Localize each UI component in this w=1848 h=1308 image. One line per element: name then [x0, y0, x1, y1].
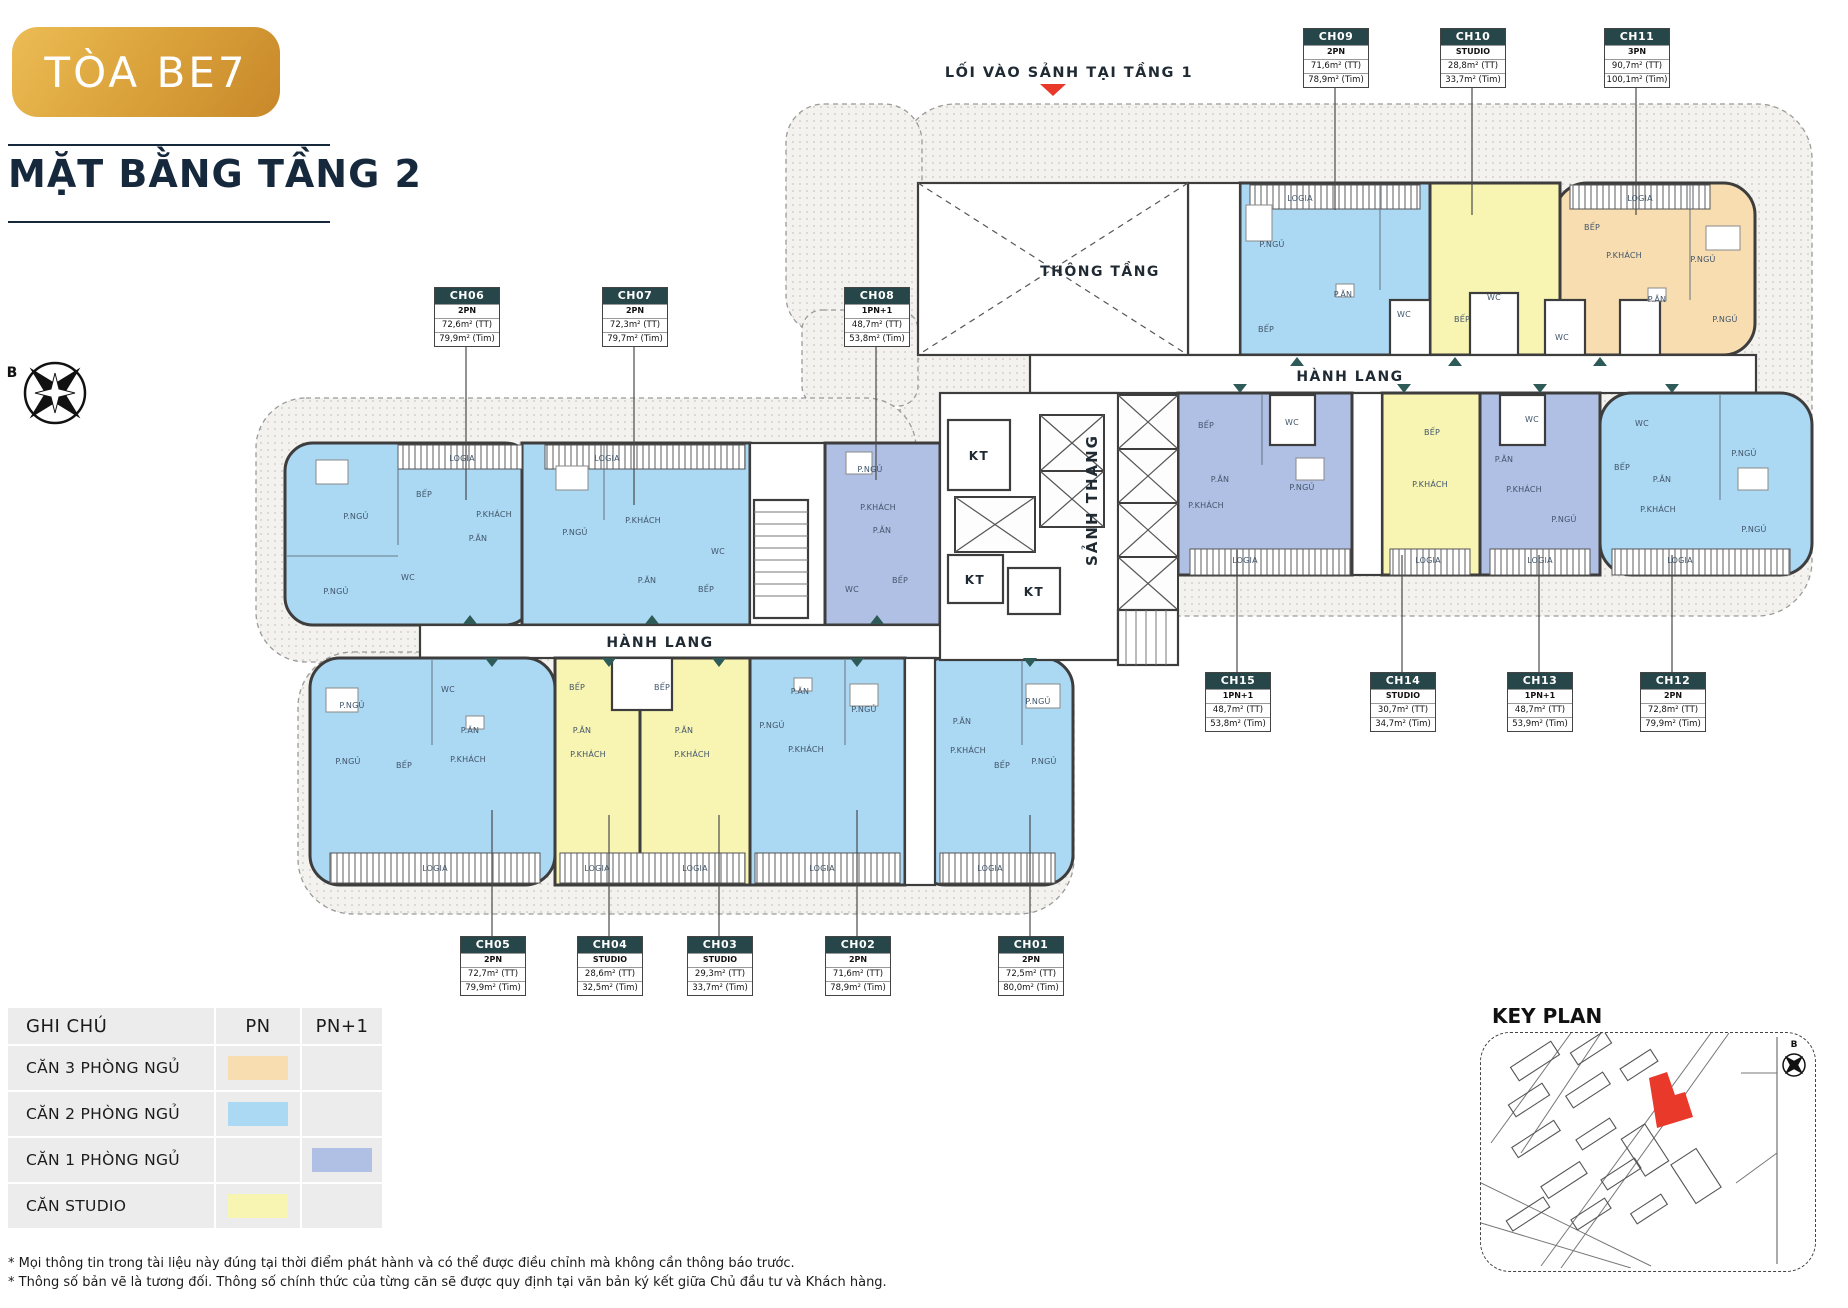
room-label-living: P.KHÁCH — [476, 508, 512, 519]
room-label-bedroom: P.NGỦ — [1289, 481, 1314, 492]
service-area — [1352, 393, 1382, 575]
room-label-logia: LOGIA — [1287, 194, 1313, 203]
room-label-kitchen: BẾP — [1614, 461, 1630, 472]
room-label-bedroom: P.NGỦ — [339, 699, 364, 710]
legend-swatch-studio — [228, 1194, 288, 1218]
room-label-living: P.KHÁCH — [625, 514, 661, 525]
room-label-wc: WC — [1487, 293, 1501, 302]
room-label-living: P.KHÁCH — [1188, 499, 1224, 510]
room-label-dining: P.ĂN — [953, 715, 971, 726]
room-label-bedroom: P.NGỦ — [1731, 447, 1756, 458]
unit-area-tim: 33,7m² (Tim) — [1441, 73, 1505, 87]
keyplan-highlight-building — [1649, 1072, 1693, 1128]
room-label-wc: WC — [1635, 419, 1649, 428]
wc-box — [1470, 293, 1518, 355]
unit-label-ch09: CH09 2PN 71,6m² (TT) 78,9m² (Tim) — [1303, 28, 1369, 88]
room-label-bedroom: P.NGỦ — [857, 463, 882, 474]
unit-area-tt: 72,3m² (TT) — [603, 318, 667, 332]
room-label-bedroom: P.NGỦ — [323, 585, 348, 596]
legend-row-1pn: CĂN 1 PHÒNG NGỦ — [8, 1138, 214, 1182]
legend-title: GHI CHÚ — [8, 1008, 214, 1044]
unit-type: 3PN — [1605, 45, 1669, 58]
keyplan-north-label: B — [1791, 1040, 1798, 1050]
left-wing — [285, 443, 1010, 658]
room-label-bedroom: P.NGỦ — [1259, 238, 1284, 249]
room-label-wc: WC — [845, 585, 859, 594]
room-label-bedroom: P.NGỦ — [1025, 695, 1050, 706]
room-label-living: P.KHÁCH — [860, 501, 896, 512]
keyplan-compass-icon: B — [1776, 1040, 1812, 1083]
room-label-kitchen: BẾP — [1584, 221, 1600, 232]
unit-label-ch15: CH15 1PN+1 48,7m² (TT) 53,8m² (Tim) — [1205, 672, 1271, 732]
room-label-logia: LOGIA — [422, 864, 448, 873]
unit-area-tt: 28,8m² (TT) — [1441, 59, 1505, 73]
unit-area-tt: 48,7m² (TT) — [845, 318, 909, 332]
unit-type: 2PN — [603, 304, 667, 317]
room-label-living: P.KHÁCH — [1412, 478, 1448, 489]
wc-box — [1620, 300, 1660, 355]
room-label-logia: LOGIA — [584, 864, 610, 873]
unit-area-tim: 100,1m² (Tim) — [1605, 73, 1669, 87]
room-label-bedroom: P.NGỦ — [1551, 513, 1576, 524]
unit-label-ch08: CH08 1PN+1 48,7m² (TT) 53,8m² (Tim) — [844, 287, 910, 347]
footnote-2: * Thông số bản vẽ là tương đối. Thông số… — [8, 1275, 887, 1290]
unit-label-ch04: CH04 STUDIO 28,6m² (TT) 32,5m² (Tim) — [577, 936, 643, 996]
room-label-living: P.KHÁCH — [788, 743, 824, 754]
room-label-kitchen: BẾP — [1454, 313, 1470, 324]
room-label-bedroom: P.NGỦ — [562, 526, 587, 537]
room-label-logia: LOGIA — [1232, 556, 1258, 565]
unit-id: CH02 — [826, 937, 890, 953]
room-label-dining: P.ĂN — [461, 724, 479, 735]
unit-area-tim: 53,8m² (Tim) — [845, 332, 909, 346]
room-label-logia: LOGIA — [449, 454, 475, 463]
room-label-dining: P.ĂN — [1495, 453, 1513, 464]
entry-arrow-icon — [1040, 84, 1066, 96]
room-label-bedroom: P.NGỦ — [343, 510, 368, 521]
room-label-wc: WC — [441, 685, 455, 694]
unit-id: CH10 — [1441, 29, 1505, 45]
kt-label: KT — [1024, 585, 1044, 599]
unit-label-ch13: CH13 1PN+1 48,7m² (TT) 53,9m² (Tim) — [1507, 672, 1573, 732]
unit-id: CH07 — [603, 288, 667, 304]
corridor-label-right: HÀNH LANG — [1296, 368, 1403, 385]
unit-area-tt: 30,7m² (TT) — [1371, 703, 1435, 717]
unit-area-ch02 — [750, 658, 905, 885]
unit-type: STUDIO — [1371, 689, 1435, 702]
room-label-living: P.KHÁCH — [950, 744, 986, 755]
unit-area-tim: 32,5m² (Tim) — [578, 981, 642, 995]
unit-area-tim: 78,9m² (Tim) — [1304, 73, 1368, 87]
unit-id: CH01 — [999, 937, 1063, 953]
room-label-wc: WC — [1555, 333, 1569, 342]
room-label-kitchen: BẾP — [892, 574, 908, 585]
room-label-logia: LOGIA — [809, 864, 835, 873]
room-label-dining: P.ĂN — [1211, 473, 1229, 484]
unit-area-tim: 80,0m² (Tim) — [999, 981, 1063, 995]
room-label-kitchen: BẾP — [994, 759, 1010, 770]
unit-area-tt: 90,7m² (TT) — [1605, 59, 1669, 73]
room-label-dining: P.ĂN — [573, 724, 591, 735]
room-label-living: P.KHÁCH — [1506, 483, 1542, 494]
unit-label-ch11: CH11 3PN 90,7m² (TT) 100,1m² (Tim) — [1604, 28, 1670, 88]
unit-type: 1PN+1 — [1206, 689, 1270, 702]
unit-type: 1PN+1 — [1508, 689, 1572, 702]
logia-strip — [545, 445, 745, 469]
core — [940, 393, 1178, 665]
unit-id: CH05 — [461, 937, 525, 953]
logia-strip — [1612, 549, 1790, 575]
unit-id: CH03 — [688, 937, 752, 953]
room-label-dining: P.ĂN — [873, 524, 891, 535]
room-label-living: P.KHÁCH — [674, 748, 710, 759]
unit-area-tim: 33,7m² (Tim) — [688, 981, 752, 995]
left-corridor — [420, 625, 1010, 658]
room-label-wc: WC — [401, 573, 415, 582]
room-label-wc: WC — [1397, 310, 1411, 319]
unit-id: CH15 — [1206, 673, 1270, 689]
unit-type: 2PN — [826, 953, 890, 966]
stairs — [754, 500, 808, 618]
unit-type: 2PN — [1641, 689, 1705, 702]
room-label-dining: P.ĂN — [469, 532, 487, 543]
unit-id: CH13 — [1508, 673, 1572, 689]
logia-strip — [1190, 549, 1350, 575]
unit-area-tim: 53,9m² (Tim) — [1508, 717, 1572, 731]
room-label-logia: LOGIA — [1627, 194, 1653, 203]
unit-area-tim: 79,9m² (Tim) — [461, 981, 525, 995]
room-label-wc: WC — [1525, 415, 1539, 424]
keyplan-title: KEY PLAN — [1492, 1004, 1602, 1028]
room-label-wc: WC — [711, 547, 725, 556]
legend-col-pn: PN — [216, 1008, 300, 1044]
room-label-logia: LOGIA — [594, 454, 620, 463]
room-label-dining: P.ĂN — [638, 574, 656, 585]
kt-label: KT — [965, 573, 985, 587]
unit-label-ch07: CH07 2PN 72,3m² (TT) 79,7m² (Tim) — [602, 287, 668, 347]
room-label-bedroom: P.NGỦ — [851, 703, 876, 714]
room-label-logia: LOGIA — [1667, 556, 1693, 565]
bottom-wing — [310, 658, 1073, 885]
unit-label-ch10: CH10 STUDIO 28,8m² (TT) 33,7m² (Tim) — [1440, 28, 1506, 88]
unit-area-tt: 72,8m² (TT) — [1641, 703, 1705, 717]
stair-lobby-label: SẢNH THANG — [1080, 434, 1101, 566]
room-label-kitchen: BẾP — [1198, 419, 1214, 430]
unit-id: CH09 — [1304, 29, 1368, 45]
compass-rose-icon: B — [4, 342, 106, 444]
room-label-living: P.KHÁCH — [1640, 503, 1676, 514]
unit-id: CH12 — [1641, 673, 1705, 689]
unit-area-tt: 72,5m² (TT) — [999, 967, 1063, 981]
stairs — [1118, 610, 1178, 665]
kt-label: KT — [969, 449, 989, 463]
legend-row-2pn: CĂN 2 PHÒNG NGỦ — [8, 1092, 214, 1136]
room-label-logia: LOGIA — [1415, 556, 1441, 565]
room-label-dining: P.ĂN — [1648, 293, 1666, 304]
footnote-1: * Mọi thông tin trong tài liệu này đúng … — [8, 1256, 795, 1271]
unit-area-tt: 71,6m² (TT) — [1304, 59, 1368, 73]
unit-label-ch03: CH03 STUDIO 29,3m² (TT) 33,7m² (Tim) — [687, 936, 753, 996]
legend-row-3pn: CĂN 3 PHÒNG NGỦ — [8, 1046, 214, 1090]
unit-type: 1PN+1 — [845, 304, 909, 317]
unit-area-tt: 72,6m² (TT) — [435, 318, 499, 332]
unit-id: CH04 — [578, 937, 642, 953]
unit-area-tt: 71,6m² (TT) — [826, 967, 890, 981]
unit-id: CH08 — [845, 288, 909, 304]
room-label-bedroom: P.NGỦ — [335, 755, 360, 766]
unit-label-ch12: CH12 2PN 72,8m² (TT) 79,9m² (Tim) — [1640, 672, 1706, 732]
unit-area-tt: 28,6m² (TT) — [578, 967, 642, 981]
room-label-dining: P.ĂN — [791, 685, 809, 696]
legend: GHI CHÚ PN PN+1 CĂN 3 PHÒNG NGỦ CĂN 2 PH… — [8, 1008, 382, 1228]
room-label-logia: LOGIA — [682, 864, 708, 873]
room-label-bedroom: P.NGỦ — [759, 719, 784, 730]
room-label-logia: LOGIA — [1527, 556, 1553, 565]
unit-id: CH14 — [1371, 673, 1435, 689]
unit-area-tim: 78,9m² (Tim) — [826, 981, 890, 995]
unit-area-tim: 34,7m² (Tim) — [1371, 717, 1435, 731]
wc-box — [1390, 300, 1430, 355]
room-label-bedroom: P.NGỦ — [1690, 253, 1715, 264]
unit-type: STUDIO — [688, 953, 752, 966]
legend-row-studio: CĂN STUDIO — [8, 1184, 214, 1228]
north-label: B — [7, 365, 18, 381]
service-area — [905, 658, 935, 885]
room-label-kitchen: BẾP — [396, 759, 412, 770]
unit-type: 2PN — [435, 304, 499, 317]
legend-swatch-1pn1 — [312, 1148, 372, 1172]
wc-box — [1545, 300, 1585, 355]
room-label-bedroom: P.NGỦ — [1031, 755, 1056, 766]
unit-id: CH11 — [1605, 29, 1669, 45]
floorplan-page: TÒA BE7 MẶT BẰNG TẦNG 2 — [0, 0, 1848, 1308]
unit-area-tt: 29,3m² (TT) — [688, 967, 752, 981]
unit-area-ch12 — [1600, 393, 1812, 575]
room-label-kitchen: BẾP — [654, 681, 670, 692]
room-label-kitchen: BẾP — [569, 681, 585, 692]
room-label-kitchen: BẾP — [1258, 323, 1274, 334]
unit-label-ch05: CH05 2PN 72,7m² (TT) 79,9m² (Tim) — [460, 936, 526, 996]
unit-label-ch01: CH01 2PN 72,5m² (TT) 80,0m² (Tim) — [998, 936, 1064, 996]
room-label-logia: LOGIA — [977, 864, 1003, 873]
unit-label-ch06: CH06 2PN 72,6m² (TT) 79,9m² (Tim) — [434, 287, 500, 347]
void-label: THÔNG TẦNG — [1040, 261, 1160, 280]
unit-area-tt: 72,7m² (TT) — [461, 967, 525, 981]
room-label-dining: P.ĂN — [1653, 473, 1671, 484]
unit-type: STUDIO — [578, 953, 642, 966]
room-label-kitchen: BẾP — [698, 583, 714, 594]
room-label-dining: P.ĂN — [1334, 288, 1352, 299]
room-label-living: P.KHÁCH — [570, 748, 606, 759]
unit-id: CH06 — [435, 288, 499, 304]
legend-col-pn1: PN+1 — [302, 1008, 382, 1044]
keyplan-map: B — [1480, 1032, 1816, 1272]
lobby-strip — [1188, 183, 1240, 355]
unit-area-tim: 79,9m² (Tim) — [435, 332, 499, 346]
unit-area-tim: 79,7m² (Tim) — [603, 332, 667, 346]
unit-label-ch14: CH14 STUDIO 30,7m² (TT) 34,7m² (Tim) — [1370, 672, 1436, 732]
unit-type: STUDIO — [1441, 45, 1505, 58]
entry-label: LỐI VÀO SẢNH TẠI TẦNG 1 — [945, 61, 1193, 81]
room-label-kitchen: BẾP — [1424, 426, 1440, 437]
room-label-bedroom: P.NGỦ — [1741, 523, 1766, 534]
room-label-bedroom: P.NGỦ — [1712, 313, 1737, 324]
keyplan-drawing: B — [1481, 1033, 1812, 1268]
room-label-dining: P.ĂN — [675, 724, 693, 735]
unit-area-tt: 48,7m² (TT) — [1508, 703, 1572, 717]
unit-area-tim: 79,9m² (Tim) — [1641, 717, 1705, 731]
corridor-label-left: HÀNH LANG — [606, 634, 713, 651]
unit-type: 2PN — [461, 953, 525, 966]
room-label-living: P.KHÁCH — [1606, 249, 1642, 260]
room-label-kitchen: BẾP — [416, 488, 432, 499]
unit-type: 2PN — [999, 953, 1063, 966]
legend-swatch-2pn — [228, 1102, 288, 1126]
unit-area-tim: 53,8m² (Tim) — [1206, 717, 1270, 731]
room-label-living: P.KHÁCH — [450, 753, 486, 764]
unit-area-tt: 48,7m² (TT) — [1206, 703, 1270, 717]
room-label-wc: WC — [1285, 418, 1299, 427]
legend-swatch-3pn — [228, 1056, 288, 1080]
unit-label-ch02: CH02 2PN 71,6m² (TT) 78,9m² (Tim) — [825, 936, 891, 996]
unit-type: 2PN — [1304, 45, 1368, 58]
